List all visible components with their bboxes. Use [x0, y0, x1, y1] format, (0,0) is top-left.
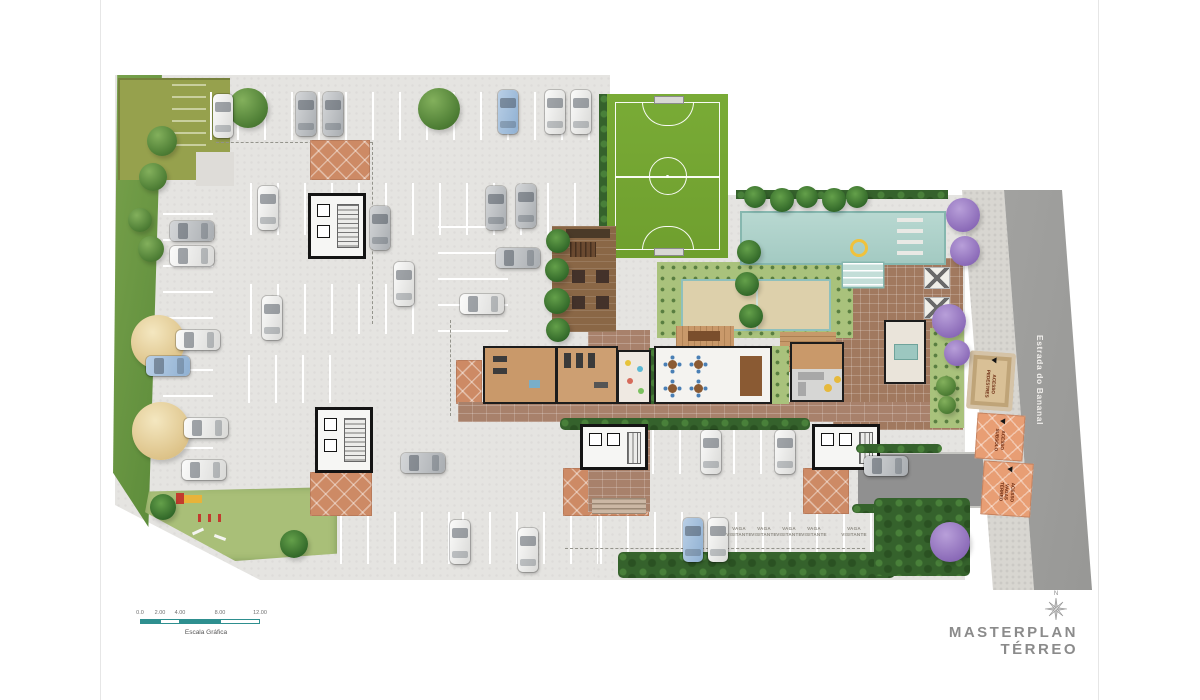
goal	[654, 96, 684, 104]
palm-tree	[739, 304, 763, 328]
party-table	[668, 360, 677, 369]
scale-segment	[140, 619, 160, 624]
parked-car	[176, 330, 220, 350]
access-arrow-icon	[997, 418, 1005, 425]
lounger	[493, 356, 507, 362]
toy	[627, 378, 633, 384]
parked-car	[262, 296, 282, 340]
treadmill	[564, 353, 571, 368]
palm-tree	[796, 186, 818, 208]
parked-car	[296, 92, 316, 136]
palm-tree	[280, 530, 308, 558]
deck-planter	[566, 229, 610, 238]
bbq-table	[572, 296, 585, 309]
parked-car	[496, 248, 540, 268]
parked-car	[516, 184, 536, 228]
plaza-tile	[925, 268, 949, 288]
parked-car	[486, 186, 506, 230]
pool-lap-platform	[897, 251, 923, 255]
parked-car	[184, 418, 228, 438]
parked-car	[394, 262, 414, 306]
sofa	[798, 372, 824, 380]
palm-tree	[546, 318, 570, 342]
parked-car	[701, 430, 721, 474]
playground-slide-top	[176, 493, 184, 504]
street-hedge	[618, 552, 895, 578]
scale-segment	[180, 619, 220, 624]
toy	[637, 366, 643, 372]
tree-green	[128, 208, 152, 232]
pool-lap-platform	[897, 240, 923, 244]
visitor-parking-label: VAGA VISITANTE	[751, 526, 777, 537]
tree-purple	[950, 236, 980, 266]
scale-tick: 4.00	[175, 610, 186, 616]
elevator	[317, 204, 330, 217]
gourmet-deck	[676, 326, 734, 348]
spa-room	[884, 320, 926, 384]
compass-north-letter: N	[1054, 591, 1058, 597]
playground-swing	[198, 514, 201, 522]
garden-steps	[172, 84, 206, 156]
tree-purple	[946, 198, 980, 232]
gym-bench	[594, 382, 608, 388]
playground-swing	[218, 514, 221, 522]
palm-tree	[822, 188, 846, 212]
palm-tree	[846, 186, 868, 208]
scale-tick: 0.0	[136, 610, 144, 616]
dining-table	[740, 356, 762, 396]
swimming-pool	[742, 213, 944, 263]
parked-car	[323, 92, 343, 136]
parked-car	[775, 430, 795, 474]
lounge-room	[790, 342, 844, 402]
elevator	[317, 225, 330, 238]
visitor-parking-label: VAGA VISITANTE	[841, 526, 867, 537]
ground-parking-access-label: ACESSO VAGAS TÉRREO	[997, 477, 1016, 508]
bbq-table	[596, 270, 609, 283]
visitor-parking-label: VAGA VISITANTE	[776, 526, 802, 537]
stairs	[344, 418, 366, 462]
treadmill	[576, 353, 583, 368]
party-room	[654, 346, 772, 404]
parked-car	[170, 221, 214, 241]
toy	[625, 360, 631, 366]
parked-car	[864, 456, 908, 476]
palm-tree	[744, 186, 766, 208]
access-arrow-icon	[988, 357, 996, 364]
bbq-table	[572, 270, 585, 283]
site-plan: Estrada do Bananal ACESSO PEDESTRES ACES…	[0, 0, 1200, 700]
pool-lap-platform	[897, 218, 923, 222]
tower-core	[580, 424, 648, 470]
massage-mat	[529, 380, 540, 388]
paved-entry	[456, 360, 482, 404]
pedestrian-access-crossing: ACESSO PEDESTRES	[966, 350, 1016, 411]
palm-tree	[546, 229, 570, 253]
paved-crossing	[803, 468, 849, 514]
parked-car	[401, 453, 445, 473]
parked-car	[146, 356, 190, 376]
treadmill	[588, 353, 595, 368]
lawn-gap	[772, 346, 789, 404]
pool-steps	[843, 263, 883, 287]
pedestrian-access-label: ACESSO PEDESTRES	[984, 369, 997, 400]
parking-stalls	[248, 355, 336, 403]
elevator	[324, 418, 337, 431]
parked-car	[182, 460, 226, 480]
kids-room	[617, 350, 651, 404]
tree-purple	[944, 340, 970, 366]
pool-float	[850, 239, 868, 257]
field-center-dot	[666, 175, 669, 178]
spa-tub	[894, 344, 918, 360]
soccer-field	[607, 94, 728, 258]
palm-tree	[735, 272, 759, 296]
toy	[638, 388, 644, 394]
tree-purple	[932, 304, 966, 338]
tree-green	[418, 88, 460, 130]
bbq-table	[596, 296, 609, 309]
palm-tree	[544, 288, 570, 314]
parked-car	[370, 206, 390, 250]
goal	[654, 248, 684, 256]
tree-green	[147, 126, 177, 156]
scale-tick: 12.00	[253, 610, 267, 616]
pool-lap-platform	[897, 229, 923, 233]
parked-car	[213, 94, 233, 138]
parked-car	[460, 294, 504, 314]
gym-room	[556, 346, 618, 404]
playground-swing	[208, 514, 211, 522]
stairs	[627, 432, 641, 464]
scale-tick: 2.00	[155, 610, 166, 616]
scale-segment	[160, 619, 180, 624]
palm-tree	[737, 240, 761, 264]
plan-title: MASTERPLAN TÉRREO	[878, 624, 1078, 658]
pouf	[834, 376, 841, 383]
parked-car	[498, 90, 518, 134]
tree-green	[138, 236, 164, 262]
street-name-label: Estrada do Bananal	[1031, 320, 1045, 440]
parked-car	[170, 246, 214, 266]
parked-car	[545, 90, 565, 134]
ramp-hedge	[856, 444, 942, 453]
access-arrow-icon	[1004, 466, 1012, 473]
paved-crossing	[310, 140, 370, 180]
party-table	[694, 384, 703, 393]
graphic-scale: 0.0 2.00 4.00 8.00 12.00 Escala Gráfica	[136, 610, 276, 640]
shrub	[938, 396, 956, 414]
walkway-steps	[592, 498, 646, 514]
scale-segment	[220, 619, 260, 624]
wellness-room	[483, 346, 557, 404]
parking-stalls	[438, 226, 508, 344]
visitor-parking-label: VAGA VISITANTE	[801, 526, 827, 537]
pergola	[570, 242, 596, 257]
visitor-parking-label: VAGA VISITANTE	[726, 526, 752, 537]
scale-caption: Escala Gráfica	[136, 629, 276, 636]
palm-tree	[545, 258, 569, 282]
elevator	[589, 433, 602, 446]
tree-yellow	[132, 402, 190, 460]
paved-crossing	[310, 472, 372, 516]
stairs	[337, 204, 359, 248]
shrub	[936, 376, 956, 396]
compass-rose-icon: N	[1042, 588, 1070, 624]
masterplan-page: Estrada do Bananal ACESSO PEDESTRES ACES…	[0, 0, 1200, 700]
ground-parking-access-crossing: ACESSO VAGAS TÉRREO	[980, 460, 1034, 517]
elevator	[839, 433, 852, 446]
sofa	[798, 382, 806, 396]
party-table	[694, 360, 703, 369]
parking-stalls	[340, 512, 456, 564]
tower-core	[315, 407, 373, 473]
lounger	[493, 368, 507, 374]
tree-green	[228, 88, 268, 128]
dining-table	[688, 331, 720, 341]
tree-purple	[930, 522, 970, 562]
parked-car	[258, 186, 278, 230]
basement-access-label: ACESSO SUBSOLO	[993, 424, 1006, 455]
elevator	[324, 439, 337, 452]
palm-tree	[770, 188, 794, 212]
parked-car	[450, 520, 470, 564]
tree-green	[139, 163, 167, 191]
basement-access-crossing: ACESSO SUBSOLO	[974, 412, 1025, 461]
parked-car	[571, 90, 591, 134]
lane-dash	[450, 320, 451, 416]
elevator	[607, 433, 620, 446]
parked-car	[518, 528, 538, 572]
elevator	[821, 433, 834, 446]
scale-tick: 8.00	[215, 610, 226, 616]
palm-tree	[150, 494, 176, 520]
party-table	[668, 384, 677, 393]
parked-car	[683, 518, 703, 562]
tower-core	[308, 193, 366, 259]
parked-car	[708, 518, 728, 562]
garden-terrace	[196, 152, 234, 186]
pouf	[824, 384, 832, 392]
